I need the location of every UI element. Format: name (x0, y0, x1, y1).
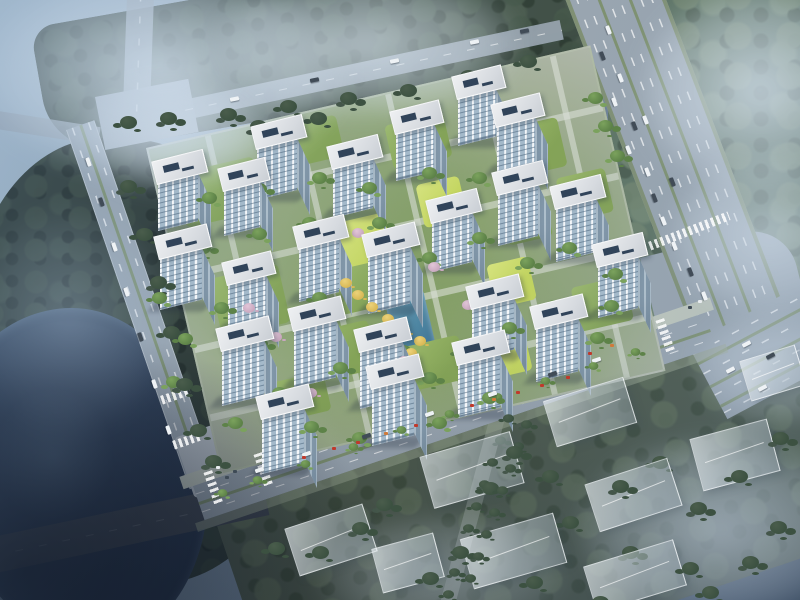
tree-cluster (312, 172, 327, 184)
tree-cluster (333, 362, 348, 374)
tree-cluster (682, 562, 699, 575)
tree-cluster (590, 332, 605, 344)
tree-cluster (520, 257, 535, 269)
tree-cluster (176, 378, 193, 391)
tree-cluster (160, 112, 177, 125)
tree-cluster (362, 182, 377, 194)
tree-cluster (152, 292, 167, 304)
tree-cluster (304, 421, 319, 433)
tree-cluster (520, 55, 537, 68)
tree-cluster (489, 508, 500, 516)
tree-cluster (220, 108, 237, 121)
tree-cluster (366, 302, 378, 312)
street-accent (516, 391, 520, 394)
tree-cluster (503, 414, 514, 422)
car (310, 77, 320, 83)
car (230, 96, 240, 102)
building-side (578, 318, 591, 396)
tree-cluster (352, 290, 364, 300)
car (611, 97, 618, 107)
tree-cluster (449, 568, 460, 576)
tree-cluster (422, 372, 437, 384)
street-accent (698, 300, 702, 303)
car (642, 115, 649, 125)
car (617, 73, 624, 83)
tree-cluster (422, 167, 437, 179)
street-accent (566, 376, 570, 379)
street-accent (233, 470, 237, 473)
tree-cluster (178, 333, 193, 345)
tree-cluster (414, 336, 426, 346)
tree-cluster (349, 443, 359, 451)
tree-cluster (610, 150, 625, 162)
tree-cluster (487, 458, 498, 466)
tree-cluster (432, 417, 447, 429)
future-building (543, 377, 637, 447)
tree-cluster (228, 417, 243, 429)
car (726, 366, 736, 374)
tree-cluster (608, 268, 623, 280)
tree-cluster (497, 486, 508, 494)
car (520, 28, 530, 34)
tree-cluster (214, 302, 229, 314)
tree-cluster (731, 470, 748, 483)
tree-cluster (243, 303, 255, 313)
tree-cluster (526, 576, 543, 589)
tree-cluster (465, 574, 476, 582)
tree-cluster (422, 572, 439, 585)
tree-cluster (352, 522, 369, 535)
future-building (584, 458, 682, 532)
tree-cluster (589, 362, 599, 370)
street-accent (356, 441, 360, 444)
car (671, 241, 678, 251)
tree-cluster (443, 590, 454, 598)
tree-cluster (136, 228, 153, 241)
car (599, 51, 606, 61)
tree-cluster (253, 476, 263, 484)
tree-cluster (150, 276, 167, 289)
future-building (284, 504, 377, 577)
tree-cluster (690, 502, 707, 515)
tree-cluster (702, 586, 719, 599)
street-accent (688, 306, 692, 309)
car (98, 197, 105, 207)
car (470, 39, 480, 45)
building-side (297, 138, 310, 215)
car (165, 425, 172, 435)
building-side (304, 408, 317, 488)
street-accent (332, 447, 336, 450)
car (701, 291, 708, 301)
tree-cluster (340, 278, 352, 288)
street-accent (216, 466, 220, 469)
crosswalk (203, 470, 223, 505)
car (605, 25, 612, 35)
street-accent (610, 344, 614, 347)
street-accent (540, 384, 544, 387)
car (625, 145, 632, 155)
tree-cluster (562, 516, 579, 529)
car (631, 121, 638, 131)
tree-cluster (218, 489, 228, 497)
tree-cluster (473, 552, 484, 560)
tree-cluster (588, 92, 603, 104)
tree-cluster (376, 498, 393, 511)
tree-cluster (472, 172, 487, 184)
street-accent (414, 424, 418, 427)
street-accent (225, 476, 229, 479)
building-side (538, 184, 551, 261)
tree-cluster (598, 120, 613, 132)
tree-cluster (463, 524, 474, 532)
tree-cluster (772, 432, 789, 445)
tree-cluster (471, 502, 482, 510)
tree-cluster (506, 446, 523, 459)
tree-cluster (612, 480, 629, 493)
car (651, 193, 658, 203)
building-side (434, 124, 447, 197)
tree-cluster (521, 420, 532, 428)
building-side (514, 298, 527, 375)
street-accent (588, 352, 592, 355)
street-accent (470, 404, 474, 407)
car (742, 340, 752, 348)
tree-cluster (280, 100, 297, 113)
car (390, 58, 400, 64)
building-side (638, 256, 651, 333)
car (151, 379, 158, 389)
tree-cluster (742, 556, 759, 569)
tree-cluster (428, 262, 440, 272)
tree-cluster (562, 242, 577, 254)
tree-cluster (542, 470, 559, 483)
street-accent (302, 456, 306, 459)
crosswalk (655, 318, 675, 355)
car (137, 332, 144, 342)
tree-cluster (202, 192, 217, 204)
tree-cluster (120, 180, 137, 193)
tree-cluster (445, 410, 455, 418)
scene-objects (0, 0, 800, 600)
street-accent (384, 432, 388, 435)
tree-cluster (340, 92, 357, 105)
building-side (202, 248, 215, 325)
tree-cluster (481, 530, 492, 538)
tree-cluster (310, 112, 327, 125)
tree-cluster (252, 228, 267, 240)
car (85, 157, 92, 167)
tree-cluster (301, 460, 311, 468)
tree-cluster (604, 300, 619, 312)
tree-cluster (472, 232, 487, 244)
car (123, 287, 130, 297)
car (644, 167, 651, 177)
building-side (472, 212, 485, 287)
car (669, 177, 676, 187)
tree-cluster (120, 116, 137, 129)
tree-cluster (268, 542, 285, 555)
car (111, 242, 118, 252)
tree-cluster (312, 546, 329, 559)
car (660, 216, 667, 226)
tree-cluster (397, 426, 407, 434)
car (687, 267, 694, 277)
aerial-residential-rendering (0, 0, 800, 600)
tree-cluster (452, 546, 469, 559)
street-accent (492, 398, 496, 401)
tree-cluster (190, 424, 207, 437)
tree-cluster (372, 217, 387, 229)
tree-cluster (505, 464, 516, 472)
tree-cluster (770, 521, 787, 534)
tree-cluster (631, 348, 641, 356)
tree-cluster (400, 84, 417, 97)
